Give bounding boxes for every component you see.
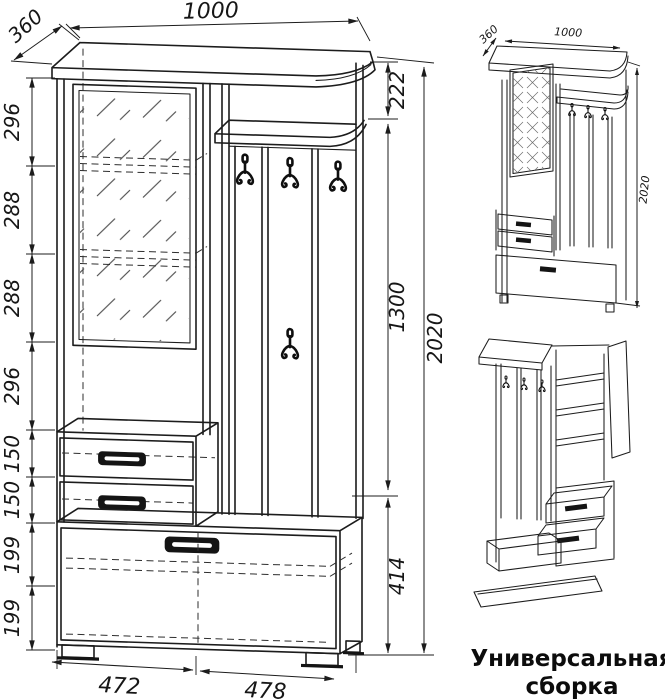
caption-line-2: сборка [525, 674, 618, 700]
door-handle [165, 536, 220, 553]
furniture-drawing: 1000 360 296 288 288 296 150 150 199 199… [0, 0, 665, 700]
iso-mirror-panel [510, 64, 553, 177]
dim-label-total-height: 2020 [423, 313, 447, 364]
dim-label-bottom-1: 478 [244, 678, 287, 700]
dim-label-left-3: 296 [0, 367, 24, 405]
dim-label-left-4: 150 [0, 435, 24, 473]
dim-label-right-0: 222 [385, 71, 409, 109]
dim-label-top-width: 1000 [183, 0, 240, 25]
dim-label-left-2: 288 [0, 279, 24, 317]
dim-label-right-1: 1300 [385, 282, 409, 333]
dim-label-left-1: 288 [0, 191, 24, 229]
technical-drawing-page: 1000 360 296 288 288 296 150 150 199 199… [0, 0, 665, 700]
mirror-glass-hatch [80, 92, 189, 342]
dim-label-right-2: 414 [385, 557, 409, 595]
dim-label-left-0: 296 [0, 103, 24, 141]
iso-dim-width: 1000 [554, 25, 583, 39]
caption-line-1: Универсальная [470, 646, 665, 672]
dim-label-left-5: 150 [0, 481, 24, 519]
mirror-panel [73, 84, 196, 349]
dim-label-left-6: 199 [0, 536, 24, 574]
dim-label-left-7: 199 [0, 599, 24, 637]
drawer-handle [98, 451, 146, 466]
dim-label-bottom-0: 472 [98, 673, 141, 700]
drawer-handle [98, 495, 146, 510]
